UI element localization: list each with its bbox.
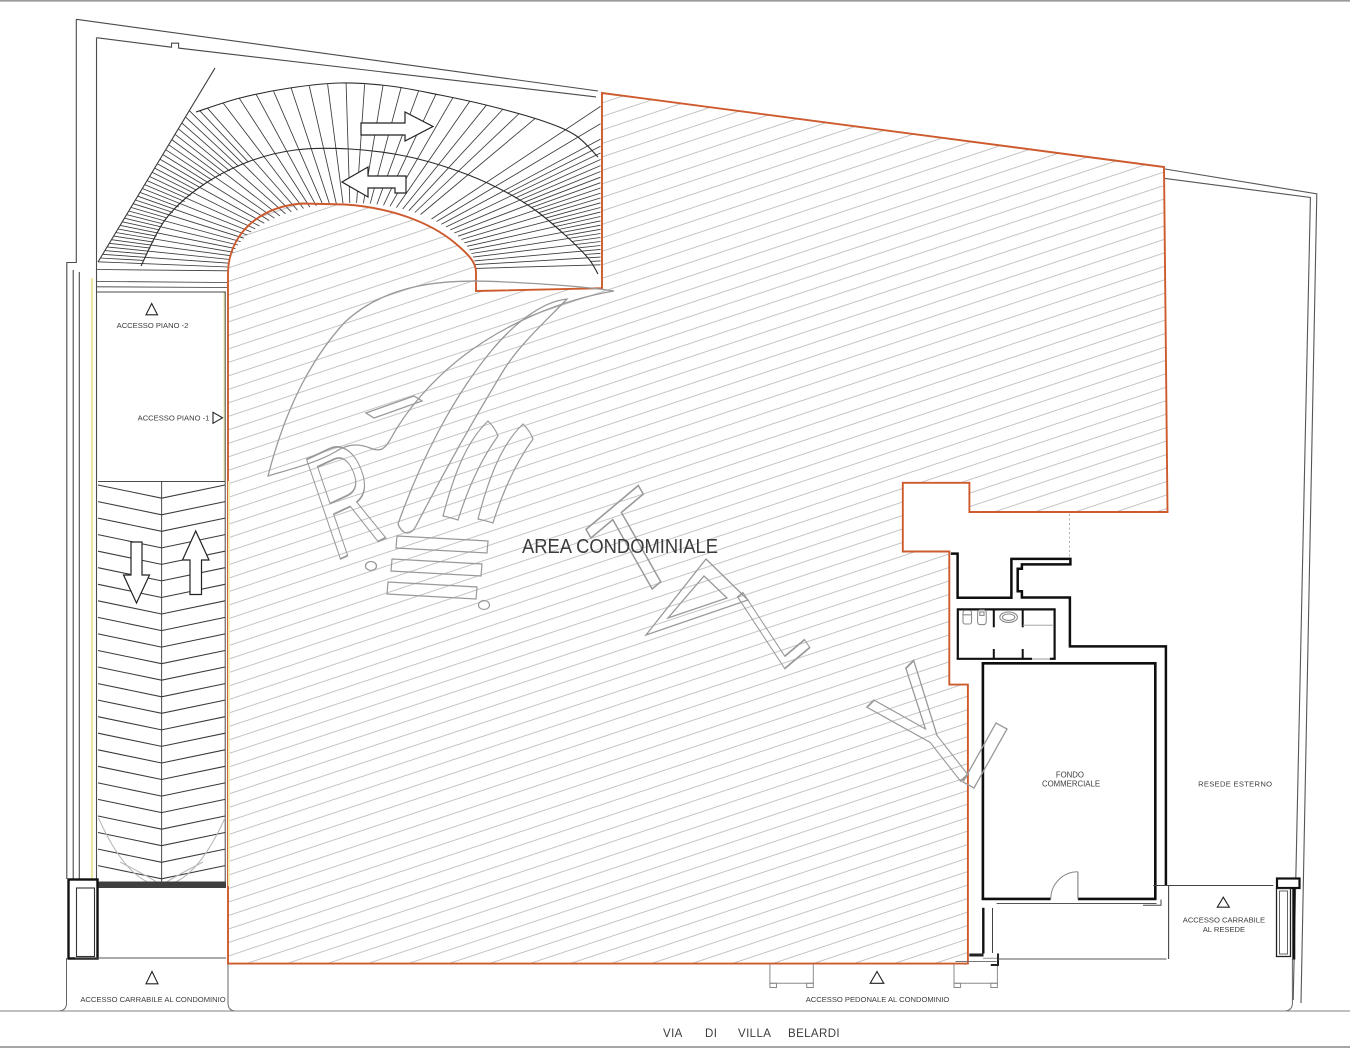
svg-text:ACCESSO PIANO -2: ACCESSO PIANO -2 bbox=[117, 321, 189, 330]
svg-text:VIA: VIA bbox=[663, 1028, 683, 1040]
svg-text:RESEDE ESTERNO: RESEDE ESTERNO bbox=[1198, 779, 1272, 788]
svg-text:AL RESEDE: AL RESEDE bbox=[1203, 925, 1245, 934]
svg-text:VILLA: VILLA bbox=[738, 1028, 771, 1040]
svg-text:ACCESSO CARRABILE: ACCESSO CARRABILE bbox=[1183, 916, 1265, 925]
svg-text:DI: DI bbox=[705, 1028, 717, 1040]
svg-text:FONDO: FONDO bbox=[1056, 771, 1084, 780]
svg-text:ACCESSO CARRABILE AL CONDOMINI: ACCESSO CARRABILE AL CONDOMINIO bbox=[80, 995, 225, 1004]
svg-text:COMMERCIALE: COMMERCIALE bbox=[1042, 780, 1100, 789]
svg-text:BELARDI: BELARDI bbox=[788, 1028, 840, 1040]
svg-text:ACCESSO PEDONALE AL CONDOMINIO: ACCESSO PEDONALE AL CONDOMINIO bbox=[806, 995, 950, 1004]
svg-text:ACCESSO PIANO -1: ACCESSO PIANO -1 bbox=[138, 414, 210, 423]
svg-text:AREA CONDOMINIALE: AREA CONDOMINIALE bbox=[522, 536, 718, 558]
